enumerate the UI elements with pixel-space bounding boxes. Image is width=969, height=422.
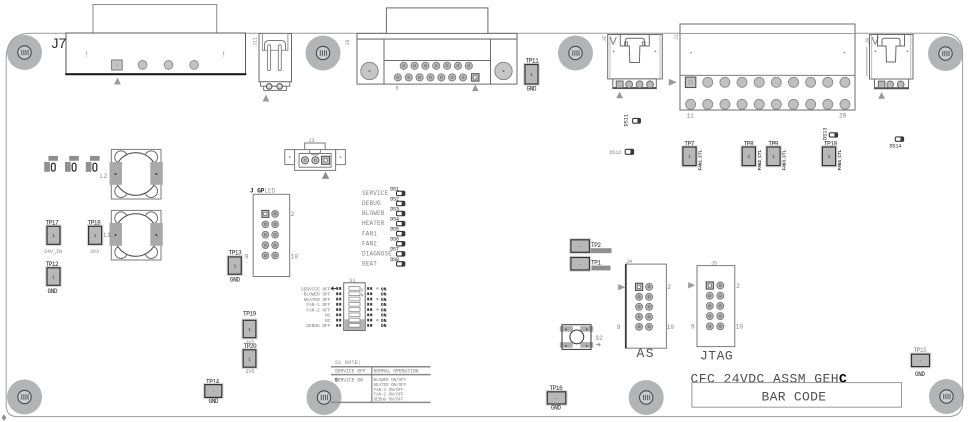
svg-text:9: 9 [691, 323, 695, 330]
svg-text:GND: GND [48, 288, 58, 295]
svg-text:NORMAL OPERATION: NORMAL OPERATION [374, 369, 419, 375]
svg-text:1: 1 [94, 233, 97, 239]
svg-text:!: ! [222, 52, 227, 60]
svg-text:ON: ON [381, 297, 387, 303]
svg-text:GND: GND [230, 276, 240, 283]
svg-text:9: 9 [245, 253, 249, 260]
svg-text:1: 1 [52, 274, 55, 280]
svg-text:AS: AS [637, 346, 656, 361]
svg-text:FAN1_CTL: FAN1_CTL [698, 149, 704, 170]
svg-text:SERVICE OFF: SERVICE OFF [335, 369, 366, 375]
svg-text:FAN-2 OFF: FAN-2 OFF [306, 307, 330, 313]
svg-text:J7: J7 [52, 35, 67, 51]
svg-text:CFC 24VDC ASSM GEHC: CFC 24VDC ASSM GEHC [691, 371, 848, 386]
svg-text:ON: ON [381, 313, 387, 319]
svg-text:DEBUG OFF: DEBUG OFF [306, 323, 330, 329]
svg-text:BLOWER OFF: BLOWER OFF [304, 292, 331, 298]
svg-text:HEATER OFF: HEATER OFF [304, 297, 331, 303]
svg-text:20: 20 [839, 113, 847, 120]
svg-text:J2: J2 [602, 36, 608, 42]
svg-text:2V5: 2V5 [246, 369, 255, 375]
svg-text:S2: S2 [596, 335, 604, 342]
svg-text:NC: NC [325, 313, 331, 319]
svg-text:N: N [361, 293, 364, 299]
svg-text:DEBUG ON/OFF: DEBUG ON/OFF [374, 396, 405, 402]
svg-text:1: 1 [233, 263, 236, 269]
svg-text:ON: ON [381, 323, 387, 329]
svg-text:SERVICE: SERVICE [362, 190, 389, 197]
svg-text:FAN1: FAN1 [362, 230, 377, 237]
svg-text:NC: NC [325, 318, 331, 324]
svg-text:DS14: DS14 [890, 144, 902, 150]
svg-text:2: 2 [291, 211, 295, 218]
svg-text:GND: GND [209, 398, 219, 405]
svg-text:GND: GND [551, 404, 561, 411]
svg-text:S1 NOTE:: S1 NOTE: [335, 360, 361, 366]
svg-text:2: 2 [736, 283, 740, 290]
svg-text:DEBUG: DEBUG [362, 200, 381, 207]
svg-text:-: - [919, 359, 922, 364]
svg-text:DS11: DS11 [624, 114, 630, 126]
svg-text:ON: ON [381, 318, 387, 324]
svg-text:1: 1 [248, 327, 251, 333]
svg-text:ON: ON [381, 292, 387, 298]
svg-text:O: O [361, 287, 364, 293]
svg-text:ON: ON [381, 307, 387, 313]
svg-text:8: 8 [396, 86, 399, 92]
svg-text:FAN-1 OFF: FAN-1 OFF [306, 302, 330, 308]
svg-text:BLOWER: BLOWER [362, 210, 385, 217]
svg-text:TP19: TP19 [243, 311, 257, 318]
svg-text:J11: J11 [253, 37, 259, 46]
svg-text:1: 1 [772, 154, 775, 160]
svg-text:-: - [579, 263, 582, 268]
svg-text:11: 11 [687, 113, 695, 120]
svg-text:BEAT: BEAT [362, 260, 377, 267]
svg-text:-: - [212, 390, 215, 395]
svg-text:JTAG: JTAG [700, 348, 733, 363]
svg-text:GND: GND [527, 86, 537, 93]
svg-text:L2: L2 [100, 173, 108, 180]
svg-text:V: V [610, 36, 618, 48]
svg-text:J1: J1 [674, 34, 680, 40]
svg-text:FAN3_CTL: FAN3_CTL [782, 149, 788, 170]
svg-text:2: 2 [667, 284, 671, 291]
svg-text:J GPLED: J GPLED [250, 187, 276, 194]
svg-text:10: 10 [291, 253, 299, 260]
svg-text:SERVICE ON: SERVICE ON [335, 377, 363, 383]
svg-text:ON: ON [381, 302, 387, 308]
svg-text:3V3: 3V3 [90, 249, 99, 255]
svg-text:1: 1 [248, 356, 251, 362]
svg-text:1: 1 [828, 154, 831, 160]
svg-text:HEATER: HEATER [362, 220, 385, 227]
svg-text:9: 9 [617, 324, 621, 331]
svg-text:TP2: TP2 [591, 242, 601, 249]
svg-text:SERVICE OFF: SERVICE OFF [301, 286, 331, 292]
svg-text:1: 1 [747, 154, 750, 160]
svg-text:-: - [555, 397, 558, 402]
svg-text:1: 1 [530, 72, 533, 78]
svg-text:TP1: TP1 [591, 259, 601, 266]
svg-text:24V_IN: 24V_IN [44, 249, 62, 255]
svg-text:FAN4_CTL: FAN4_CTL [837, 149, 843, 170]
svg-text:!: ! [85, 52, 90, 60]
svg-text:FAN2: FAN2 [362, 240, 377, 247]
svg-text:10: 10 [736, 323, 744, 330]
svg-text:GND: GND [915, 371, 925, 378]
svg-text:J6: J6 [345, 39, 351, 45]
svg-text:1: 1 [52, 233, 55, 239]
svg-text:L1: L1 [104, 232, 112, 239]
svg-text:-: - [579, 245, 582, 250]
svg-text:ON: ON [381, 286, 387, 292]
svg-text:DS12: DS12 [610, 150, 622, 156]
svg-text:DIAGNOSE: DIAGNOSE [362, 250, 392, 257]
svg-text:BAR CODE: BAR CODE [762, 389, 827, 404]
svg-text:10: 10 [667, 324, 675, 331]
svg-text:1: 1 [688, 154, 691, 160]
svg-text:DS13: DS13 [822, 128, 828, 140]
svg-text:FAN2_CTL: FAN2_CTL [757, 149, 763, 170]
